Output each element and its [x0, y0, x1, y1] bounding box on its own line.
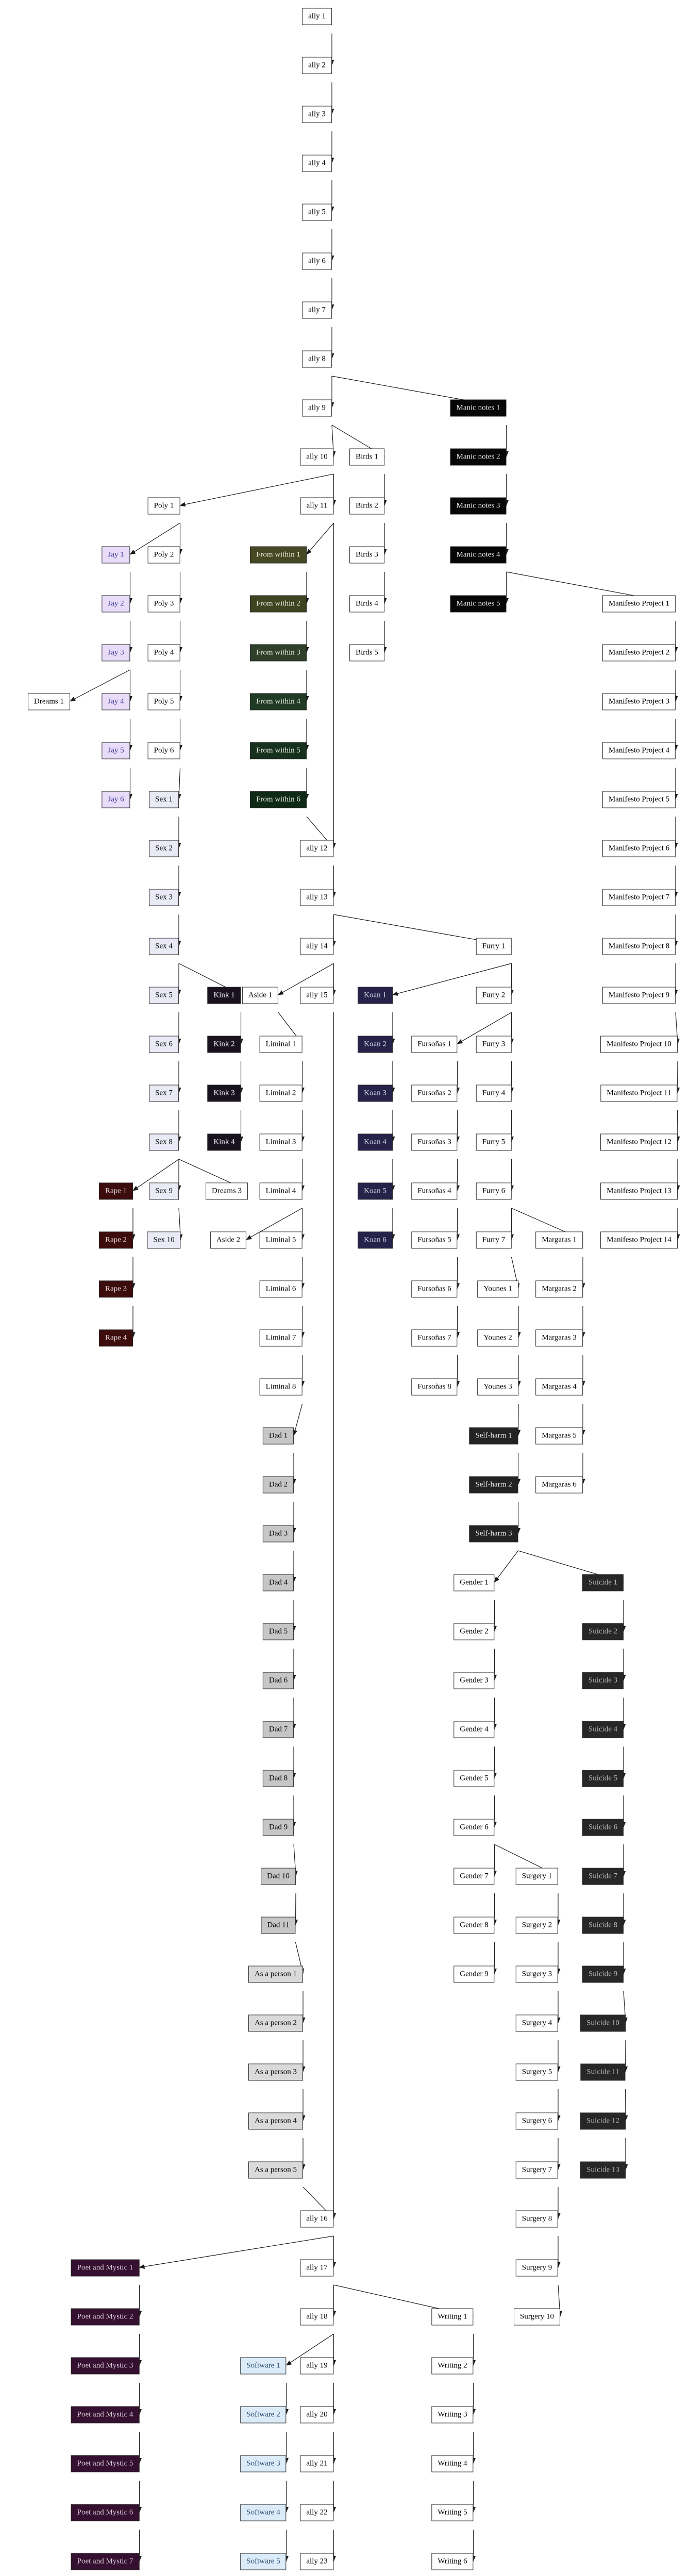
- node-gender-6: Gender 6: [453, 1819, 494, 1836]
- node-koan-1: Koan 1: [358, 987, 393, 1004]
- node-margaras-3: Margaras 3: [535, 1330, 583, 1347]
- node-surgery-6: Surgery 6: [516, 2113, 558, 2130]
- node-suicide-12: Suicide 12: [580, 2113, 626, 2130]
- node-manifesto-2: Manifesto Project 2: [602, 645, 676, 662]
- node-dad-10: Dad 10: [261, 1868, 296, 1885]
- node-liminal-7: Liminal 7: [260, 1330, 303, 1347]
- edge-ally-11-to-fw-1: [307, 523, 334, 554]
- node-manifesto-14: Manifesto Project 14: [600, 1232, 678, 1249]
- node-ally-16: ally 16: [300, 2211, 333, 2228]
- node-selfharm-2: Self-harm 2: [469, 1477, 518, 1494]
- node-ally-13: ally 13: [300, 889, 333, 906]
- node-gender-1: Gender 1: [453, 1574, 494, 1591]
- node-manifesto-8: Manifesto Project 8: [602, 938, 676, 955]
- node-poly-2: Poly 2: [148, 547, 180, 564]
- node-fw-2: From within 2: [250, 596, 307, 613]
- node-surgery-4: Surgery 4: [516, 2015, 558, 2032]
- node-koan-3: Koan 3: [358, 1085, 393, 1102]
- node-dad-8: Dad 8: [263, 1770, 294, 1787]
- node-pm-6: Poet and Mystic 6: [71, 2504, 140, 2521]
- node-aap-4: As a person 4: [248, 2113, 303, 2130]
- node-surgery-1: Surgery 1: [516, 1868, 558, 1885]
- node-margaras-1: Margaras 1: [535, 1232, 583, 1249]
- node-liminal-1: Liminal 1: [260, 1036, 303, 1053]
- node-dad-11: Dad 11: [261, 1917, 295, 1934]
- node-sex-6: Sex 6: [149, 1036, 179, 1053]
- node-sex-2: Sex 2: [149, 840, 179, 857]
- node-margaras-5: Margaras 5: [535, 1428, 583, 1445]
- node-gender-5: Gender 5: [453, 1770, 494, 1787]
- node-ally-15: ally 15: [300, 987, 333, 1004]
- node-poly-4: Poly 4: [148, 645, 180, 662]
- node-furry-4: Furry 4: [476, 1085, 512, 1102]
- node-rape-2: Rape 2: [99, 1232, 133, 1249]
- node-ally-1: ally 1: [302, 8, 332, 25]
- node-manifesto-4: Manifesto Project 4: [602, 742, 676, 759]
- node-aside-2: Aside 2: [210, 1232, 246, 1249]
- node-fursonas-1: Fursoñas 1: [411, 1036, 457, 1053]
- node-ally-12: ally 12: [300, 840, 333, 857]
- edge-selfharm-3-to-gender-1: [495, 1551, 518, 1582]
- node-fw-3: From within 3: [250, 645, 307, 662]
- node-dad-5: Dad 5: [263, 1623, 294, 1640]
- node-birds-2: Birds 2: [349, 498, 384, 515]
- node-fursonas-8: Fursoñas 8: [411, 1379, 457, 1396]
- node-sex-5: Sex 5: [149, 987, 179, 1004]
- node-manic-1: Manic notes 1: [450, 400, 507, 417]
- node-writing-2: Writing 2: [431, 2358, 473, 2375]
- node-selfharm-1: Self-harm 1: [469, 1428, 518, 1445]
- node-birds-5: Birds 5: [349, 645, 384, 662]
- node-margaras-6: Margaras 6: [535, 1477, 583, 1494]
- node-pm-1: Poet and Mystic 1: [71, 2260, 140, 2277]
- node-ally-2: ally 2: [302, 57, 332, 74]
- node-aap-2: As a person 2: [248, 2015, 303, 2032]
- node-fw-1: From within 1: [250, 547, 307, 564]
- node-aap-3: As a person 3: [248, 2064, 303, 2081]
- node-writing-6: Writing 6: [431, 2553, 473, 2570]
- node-fursonas-4: Fursoñas 4: [411, 1183, 457, 1200]
- node-suicide-3: Suicide 3: [582, 1672, 624, 1689]
- node-manifesto-13: Manifesto Project 13: [600, 1183, 678, 1200]
- node-ally-7: ally 7: [302, 302, 332, 319]
- node-manifesto-1: Manifesto Project 1: [602, 596, 676, 613]
- node-liminal-3: Liminal 3: [260, 1134, 303, 1151]
- node-dad-2: Dad 2: [263, 1477, 294, 1494]
- node-suicide-5: Suicide 5: [582, 1770, 624, 1787]
- node-dad-1: Dad 1: [263, 1428, 294, 1445]
- node-suicide-10: Suicide 10: [580, 2015, 626, 2032]
- node-koan-2: Koan 2: [358, 1036, 393, 1053]
- node-manifesto-3: Manifesto Project 3: [602, 693, 676, 710]
- node-fursonas-7: Fursoñas 7: [411, 1330, 457, 1347]
- node-kink-4: Kink 4: [207, 1134, 241, 1151]
- node-pm-5: Poet and Mystic 5: [71, 2455, 140, 2472]
- node-gender-9: Gender 9: [453, 1966, 494, 1983]
- node-margaras-2: Margaras 2: [535, 1281, 583, 1298]
- node-liminal-4: Liminal 4: [260, 1183, 303, 1200]
- node-jay-6: Jay 6: [102, 791, 130, 808]
- node-fw-5: From within 5: [250, 742, 307, 759]
- node-fursonas-5: Fursoñas 5: [411, 1232, 457, 1249]
- node-sex-9: Sex 9: [149, 1183, 179, 1200]
- node-rape-1: Rape 1: [99, 1183, 133, 1200]
- node-dad-6: Dad 6: [263, 1672, 294, 1689]
- node-younes-3: Younes 3: [477, 1379, 518, 1396]
- node-liminal-8: Liminal 8: [260, 1379, 303, 1396]
- node-furry-2: Furry 2: [476, 987, 512, 1004]
- node-surgery-10: Surgery 10: [514, 2309, 560, 2326]
- node-suicide-9: Suicide 9: [582, 1966, 624, 1983]
- node-manifesto-11: Manifesto Project 11: [600, 1085, 677, 1102]
- node-jay-5: Jay 5: [102, 742, 130, 759]
- node-ally-22: ally 22: [300, 2504, 333, 2521]
- node-jay-2: Jay 2: [102, 596, 130, 613]
- node-sex-10: Sex 10: [147, 1232, 180, 1249]
- node-suicide-1: Suicide 1: [582, 1574, 624, 1591]
- node-fursonas-3: Fursoñas 3: [411, 1134, 457, 1151]
- node-surgery-9: Surgery 9: [516, 2260, 558, 2277]
- node-suicide-8: Suicide 8: [582, 1917, 624, 1934]
- node-pm-7: Poet and Mystic 7: [71, 2553, 140, 2570]
- node-furry-6: Furry 6: [476, 1183, 512, 1200]
- node-pm-3: Poet and Mystic 3: [71, 2358, 140, 2375]
- node-ally-23: ally 23: [300, 2553, 333, 2570]
- node-suicide-4: Suicide 4: [582, 1721, 624, 1738]
- node-surgery-5: Surgery 5: [516, 2064, 558, 2081]
- node-suicide-6: Suicide 6: [582, 1819, 624, 1836]
- node-dad-9: Dad 9: [263, 1819, 294, 1836]
- node-ally-14: ally 14: [300, 938, 333, 955]
- node-sex-8: Sex 8: [149, 1134, 179, 1151]
- node-gender-3: Gender 3: [453, 1672, 494, 1689]
- node-gender-2: Gender 2: [453, 1623, 494, 1640]
- node-poly-5: Poly 5: [148, 693, 180, 710]
- node-jay-1: Jay 1: [102, 547, 130, 564]
- edge-liminal-8-to-dad-1: [294, 1404, 303, 1435]
- node-younes-1: Younes 1: [477, 1281, 518, 1298]
- node-poly-3: Poly 3: [148, 596, 180, 613]
- node-software-5: Software 5: [240, 2553, 286, 2570]
- node-ally-3: ally 3: [302, 106, 332, 123]
- node-ally-20: ally 20: [300, 2406, 333, 2424]
- node-software-2: Software 2: [240, 2406, 286, 2424]
- node-ally-19: ally 19: [300, 2358, 333, 2375]
- node-sex-1: Sex 1: [149, 791, 179, 808]
- node-koan-5: Koan 5: [358, 1183, 393, 1200]
- node-fw-4: From within 4: [250, 693, 307, 710]
- node-gender-4: Gender 4: [453, 1721, 494, 1738]
- node-sex-3: Sex 3: [149, 889, 179, 906]
- node-koan-6: Koan 6: [358, 1232, 393, 1249]
- node-software-3: Software 3: [240, 2455, 286, 2472]
- node-ally-9: ally 9: [302, 400, 332, 417]
- node-liminal-2: Liminal 2: [260, 1085, 303, 1102]
- node-kink-2: Kink 2: [207, 1036, 241, 1053]
- node-writing-5: Writing 5: [431, 2504, 473, 2521]
- node-aside-1: Aside 1: [242, 987, 278, 1004]
- node-furry-7: Furry 7: [476, 1232, 512, 1249]
- node-furry-5: Furry 5: [476, 1134, 512, 1151]
- node-furry-3: Furry 3: [476, 1036, 512, 1053]
- node-fursonas-6: Fursoñas 6: [411, 1281, 457, 1298]
- node-suicide-7: Suicide 7: [582, 1868, 624, 1885]
- node-software-4: Software 4: [240, 2504, 286, 2521]
- node-poly-1: Poly 1: [148, 498, 180, 515]
- node-surgery-2: Surgery 2: [516, 1917, 558, 1934]
- node-manifesto-12: Manifesto Project 12: [600, 1134, 678, 1151]
- node-birds-4: Birds 4: [349, 596, 384, 613]
- node-manic-5: Manic notes 5: [450, 596, 507, 613]
- node-dreams-3: Dreams 3: [206, 1183, 248, 1200]
- node-ally-4: ally 4: [302, 155, 332, 172]
- node-dad-7: Dad 7: [263, 1721, 294, 1738]
- node-selfharm-3: Self-harm 3: [469, 1526, 518, 1543]
- node-birds-1: Birds 1: [349, 449, 384, 466]
- node-ally-21: ally 21: [300, 2455, 333, 2472]
- node-ally-17: ally 17: [300, 2260, 333, 2277]
- node-manifesto-9: Manifesto Project 9: [602, 987, 676, 1004]
- node-ally-8: ally 8: [302, 351, 332, 368]
- node-furry-1: Furry 1: [476, 938, 512, 955]
- node-kink-1: Kink 1: [207, 987, 241, 1004]
- node-dad-4: Dad 4: [263, 1574, 294, 1591]
- node-aap-1: As a person 1: [248, 1966, 303, 1983]
- flowchart-canvas: ally 1ally 2ally 3ally 4ally 5ally 6ally…: [0, 0, 689, 2576]
- edge-poly-6-to-sex-1: [179, 768, 180, 799]
- node-manifesto-6: Manifesto Project 6: [602, 840, 676, 857]
- node-manic-4: Manic notes 4: [450, 547, 507, 564]
- node-writing-3: Writing 3: [431, 2406, 473, 2424]
- node-dreams-1: Dreams 1: [28, 693, 70, 710]
- node-surgery-7: Surgery 7: [516, 2162, 558, 2179]
- node-margaras-4: Margaras 4: [535, 1379, 583, 1396]
- node-sex-7: Sex 7: [149, 1085, 179, 1102]
- node-manic-2: Manic notes 2: [450, 449, 507, 466]
- node-jay-3: Jay 3: [102, 645, 130, 662]
- node-writing-4: Writing 4: [431, 2455, 473, 2472]
- node-aap-5: As a person 5: [248, 2162, 303, 2179]
- node-pm-2: Poet and Mystic 2: [71, 2309, 140, 2326]
- node-gender-8: Gender 8: [453, 1917, 494, 1934]
- node-sex-4: Sex 4: [149, 938, 179, 955]
- node-rape-3: Rape 3: [99, 1281, 133, 1298]
- node-ally-5: ally 5: [302, 204, 332, 221]
- node-koan-4: Koan 4: [358, 1134, 393, 1151]
- node-kink-3: Kink 3: [207, 1085, 241, 1102]
- node-suicide-11: Suicide 11: [580, 2064, 625, 2081]
- node-ally-18: ally 18: [300, 2309, 333, 2326]
- node-pm-4: Poet and Mystic 4: [71, 2406, 140, 2424]
- node-poly-6: Poly 6: [148, 742, 180, 759]
- node-jay-4: Jay 4: [102, 693, 130, 710]
- node-birds-3: Birds 3: [349, 547, 384, 564]
- node-rape-4: Rape 4: [99, 1330, 133, 1347]
- node-manifesto-7: Manifesto Project 7: [602, 889, 676, 906]
- node-liminal-5: Liminal 5: [260, 1232, 303, 1249]
- node-ally-10: ally 10: [300, 449, 333, 466]
- node-manifesto-5: Manifesto Project 5: [602, 791, 676, 808]
- node-manifesto-10: Manifesto Project 10: [600, 1036, 678, 1053]
- node-gender-7: Gender 7: [453, 1868, 494, 1885]
- node-surgery-8: Surgery 8: [516, 2211, 558, 2228]
- node-writing-1: Writing 1: [431, 2309, 473, 2326]
- node-suicide-13: Suicide 13: [580, 2162, 626, 2179]
- node-fursonas-2: Fursoñas 2: [411, 1085, 457, 1102]
- node-software-1: Software 1: [240, 2358, 286, 2375]
- node-surgery-3: Surgery 3: [516, 1966, 558, 1983]
- node-younes-2: Younes 2: [477, 1330, 518, 1347]
- node-liminal-6: Liminal 6: [260, 1281, 303, 1298]
- node-dad-3: Dad 3: [263, 1526, 294, 1543]
- node-ally-6: ally 6: [302, 253, 332, 270]
- node-suicide-2: Suicide 2: [582, 1623, 624, 1640]
- node-fw-6: From within 6: [250, 791, 307, 808]
- node-manic-3: Manic notes 3: [450, 498, 507, 515]
- node-ally-11: ally 11: [300, 498, 334, 515]
